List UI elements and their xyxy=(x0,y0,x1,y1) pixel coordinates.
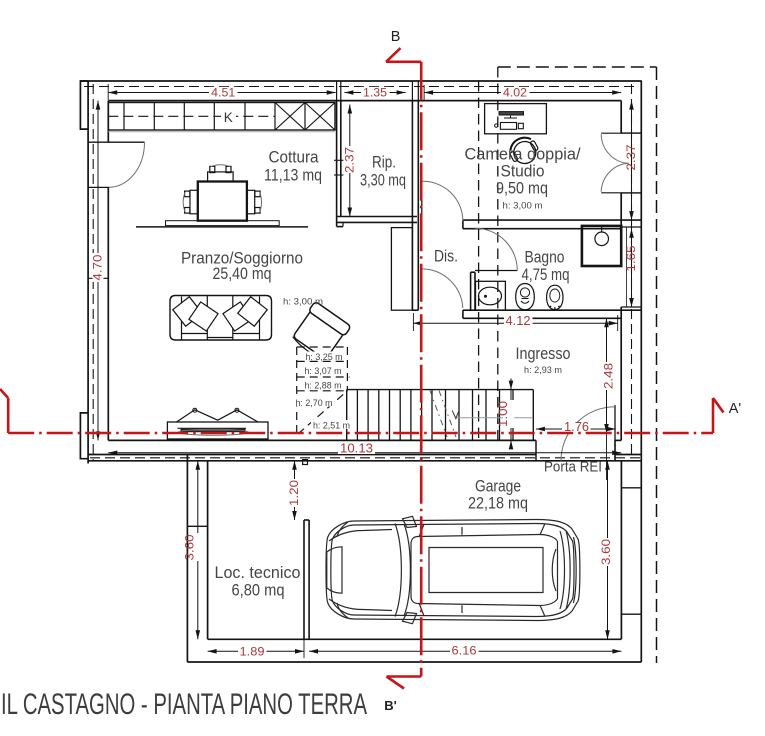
svg-text:1.89: 1.89 xyxy=(240,644,265,658)
svg-text:6.16: 6.16 xyxy=(452,644,477,658)
svg-text:Ingresso: Ingresso xyxy=(516,345,571,363)
svg-text:1.35: 1.35 xyxy=(363,85,387,99)
svg-text:2.37: 2.37 xyxy=(624,144,638,170)
svg-text:Cottura: Cottura xyxy=(269,149,320,167)
svg-text:IL CASTAGNO - PIANTA PIANO TER: IL CASTAGNO - PIANTA PIANO TERRA xyxy=(1,688,367,721)
svg-text:Bagno: Bagno xyxy=(525,249,565,267)
svg-text:22,18 mq: 22,18 mq xyxy=(468,495,528,513)
svg-text:4.51: 4.51 xyxy=(211,85,235,99)
svg-text:6,80 mq: 6,80 mq xyxy=(232,582,285,600)
svg-text:4,75 mq: 4,75 mq xyxy=(522,266,570,284)
svg-text:4.70: 4.70 xyxy=(91,254,105,280)
svg-text:Loc. tecnico: Loc. tecnico xyxy=(215,564,301,582)
svg-text:K: K xyxy=(224,110,233,125)
svg-text:h: 2,88 m: h: 2,88 m xyxy=(305,380,342,390)
svg-text:4.12: 4.12 xyxy=(506,314,531,328)
svg-text:h: 3,25 m: h: 3,25 m xyxy=(306,352,343,362)
svg-text:A': A' xyxy=(729,401,742,417)
svg-text:Camera doppia/: Camera doppia/ xyxy=(465,146,581,164)
svg-text:9,50 mq: 9,50 mq xyxy=(496,180,548,198)
svg-text:1.00: 1.00 xyxy=(496,401,510,427)
svg-text:25,40 mq: 25,40 mq xyxy=(213,265,272,283)
svg-text:B: B xyxy=(391,29,401,45)
svg-text:h: 2,70 m: h: 2,70 m xyxy=(296,398,333,408)
svg-text:h: 3,07 m: h: 3,07 m xyxy=(305,366,342,376)
svg-text:Studio: Studio xyxy=(501,163,545,181)
svg-text:Garage: Garage xyxy=(475,478,521,496)
svg-text:B': B' xyxy=(384,698,396,713)
svg-text:h: 2,51 m: h: 2,51 m xyxy=(313,420,350,430)
svg-text:1.65: 1.65 xyxy=(624,245,638,271)
svg-text:h: 2,93 m: h: 2,93 m xyxy=(524,365,562,375)
svg-text:h: 3,00 m: h: 3,00 m xyxy=(503,201,543,211)
svg-text:Porta REI: Porta REI xyxy=(544,460,602,476)
svg-text:h: 3,00 m: h: 3,00 m xyxy=(283,296,323,306)
svg-text:Rip.: Rip. xyxy=(372,154,396,172)
svg-text:2.37: 2.37 xyxy=(342,147,356,173)
svg-text:2.48: 2.48 xyxy=(602,363,616,389)
svg-text:Dis.: Dis. xyxy=(434,248,458,266)
svg-text:10.13: 10.13 xyxy=(340,442,373,456)
svg-text:3,30 mq: 3,30 mq xyxy=(360,172,406,190)
svg-text:1.20: 1.20 xyxy=(287,480,301,506)
svg-text:3.60: 3.60 xyxy=(599,539,613,565)
svg-text:3.60: 3.60 xyxy=(183,534,197,560)
svg-text:4.02: 4.02 xyxy=(503,85,527,99)
svg-text:11,13 mq: 11,13 mq xyxy=(264,167,322,185)
